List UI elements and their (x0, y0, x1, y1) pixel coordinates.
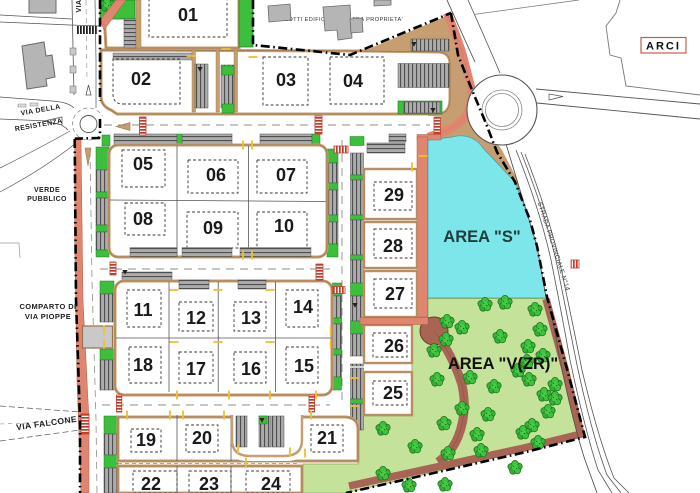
svg-text:25: 25 (383, 383, 403, 403)
svg-text:18: 18 (133, 355, 153, 375)
svg-text:19: 19 (136, 430, 156, 450)
svg-text:26: 26 (384, 336, 404, 356)
svg-text:15: 15 (294, 356, 314, 376)
svg-text:14: 14 (293, 297, 313, 317)
svg-text:VIA: VIA (76, 0, 83, 12)
svg-text:07: 07 (276, 165, 296, 185)
svg-text:05: 05 (133, 154, 153, 174)
svg-text:04: 04 (343, 71, 363, 91)
svg-text:10: 10 (274, 216, 294, 236)
svg-text:VIA PIOPPE: VIA PIOPPE (25, 312, 71, 321)
svg-text:17: 17 (186, 359, 206, 379)
svg-text:22: 22 (141, 474, 161, 493)
svg-text:12: 12 (186, 308, 206, 328)
svg-text:03: 03 (276, 70, 296, 90)
svg-text:VERDE: VERDE (34, 187, 60, 194)
svg-text:13: 13 (241, 308, 261, 328)
svg-text:01: 01 (178, 5, 198, 25)
svg-text:11: 11 (133, 300, 152, 320)
svg-text:21: 21 (317, 428, 337, 448)
svg-text:ARCI: ARCI (646, 41, 681, 53)
svg-text:06: 06 (206, 165, 226, 185)
svg-text:27: 27 (385, 284, 405, 304)
svg-text:AREA "V(ZR)": AREA "V(ZR)" (448, 355, 558, 373)
svg-text:PUBBLICO: PUBBLICO (27, 196, 67, 203)
svg-text:09: 09 (203, 218, 223, 238)
svg-text:08: 08 (133, 209, 153, 229)
svg-text:28: 28 (383, 236, 403, 256)
svg-text:20: 20 (192, 428, 212, 448)
svg-text:23: 23 (199, 474, 219, 493)
svg-text:24: 24 (261, 474, 281, 493)
svg-text:29: 29 (384, 185, 404, 205)
svg-text:16: 16 (241, 359, 261, 379)
svg-text:02: 02 (131, 69, 151, 89)
svg-text:AREA "S": AREA "S" (443, 228, 520, 246)
svg-text:COMPARTO DI: COMPARTO DI (19, 302, 76, 311)
